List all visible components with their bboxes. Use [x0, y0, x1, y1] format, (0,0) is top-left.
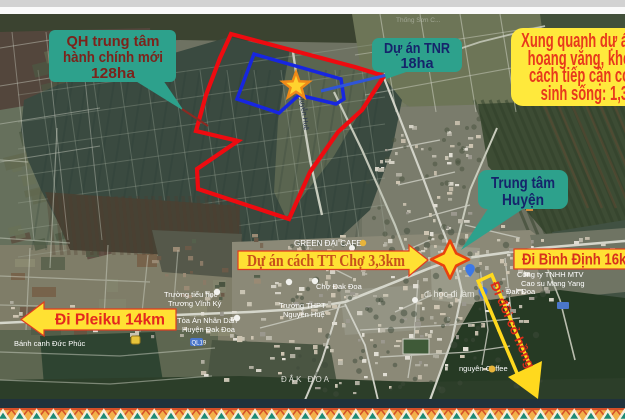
svg-text:Dự án cách TT Chợ 3,3km: Dự án cách TT Chợ 3,3km: [247, 251, 405, 270]
svg-text:Trường THPT: Trường THPT: [279, 301, 326, 310]
svg-text:Bánh canh Đức Phúc: Bánh canh Đức Phúc: [14, 339, 86, 348]
svg-text:đi học đi làm: đi học đi làm: [424, 289, 475, 299]
svg-text:nguyên Coffee: nguyên Coffee: [459, 364, 508, 373]
svg-text:Huyện Đak Đoa: Huyện Đak Đoa: [182, 325, 236, 334]
svg-text:128ha: 128ha: [91, 65, 136, 82]
svg-text:Chợ Đak Đoa: Chợ Đak Đoa: [316, 282, 363, 291]
svg-text:Tòa Án Nhân Dân: Tòa Án Nhân Dân: [177, 316, 237, 325]
svg-text:QH trung tâm: QH trung tâm: [67, 33, 160, 50]
svg-text:Đak Đoa: Đak Đoa: [506, 287, 536, 296]
svg-text:Trung tâm: Trung tâm: [491, 175, 555, 192]
svg-text:Huyện: Huyện: [502, 192, 544, 209]
svg-text:Nguyễn Huệ: Nguyễn Huệ: [283, 310, 325, 319]
svg-text:hành chính mới: hành chính mới: [63, 49, 163, 66]
svg-text:Thống Sơn C...: Thống Sơn C...: [396, 15, 441, 24]
svg-text:Công ty TNHH MTV: Công ty TNHH MTV: [517, 270, 584, 279]
svg-text:18ha: 18ha: [401, 55, 435, 72]
svg-text:QL19: QL19: [192, 341, 207, 347]
svg-text:Trương Vĩnh Ký: Trương Vĩnh Ký: [168, 299, 222, 308]
svg-text:Đi Pleiku 14km: Đi Pleiku 14km: [55, 312, 165, 329]
svg-text:Trường tiểu học: Trường tiểu học: [164, 290, 218, 299]
svg-text:ĐẮK ĐOA: ĐẮK ĐOA: [281, 375, 331, 384]
svg-text:Đi Bình Định 16km: Đi Bình Định 16km: [522, 252, 625, 269]
